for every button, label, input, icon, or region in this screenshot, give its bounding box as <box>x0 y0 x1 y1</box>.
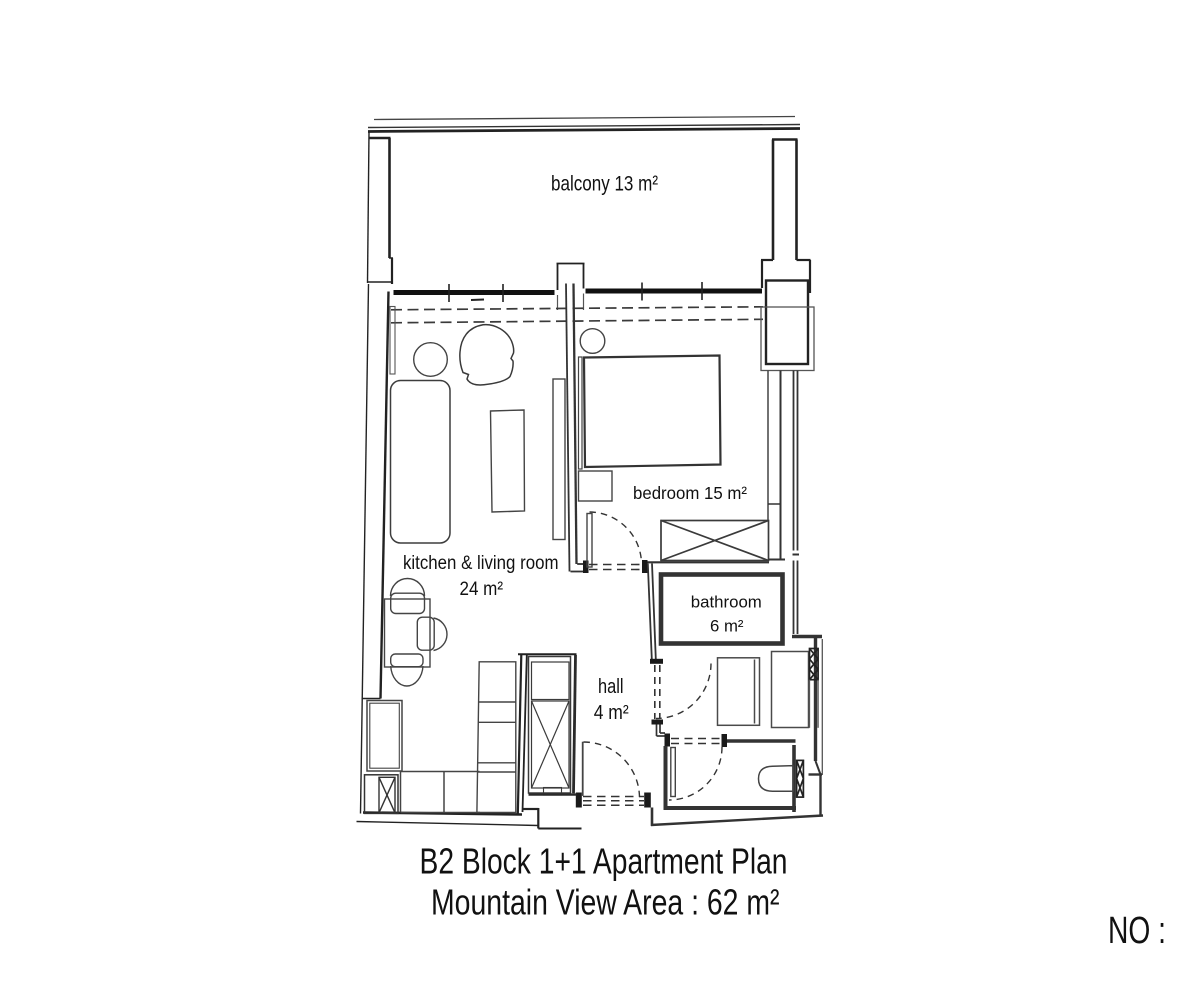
svg-text:6 m²: 6 m² <box>710 618 744 636</box>
svg-text:kitchen & living room: kitchen & living room <box>403 552 559 574</box>
svg-text:hall: hall <box>598 676 624 698</box>
svg-text:NO :: NO : <box>1108 910 1166 952</box>
svg-text:B2 Block 1+1 Apartment Plan: B2 Block 1+1 Apartment Plan <box>420 840 788 881</box>
svg-text:24 m²: 24 m² <box>460 578 504 600</box>
svg-text:Mountain View Area : 62 m²: Mountain View Area : 62 m² <box>431 881 780 922</box>
svg-text:4 m²: 4 m² <box>594 702 629 724</box>
svg-text:bedroom 15 m²: bedroom 15 m² <box>633 483 747 503</box>
svg-text:balcony 13 m²: balcony 13 m² <box>551 172 658 195</box>
svg-text:bathroom: bathroom <box>691 594 762 612</box>
